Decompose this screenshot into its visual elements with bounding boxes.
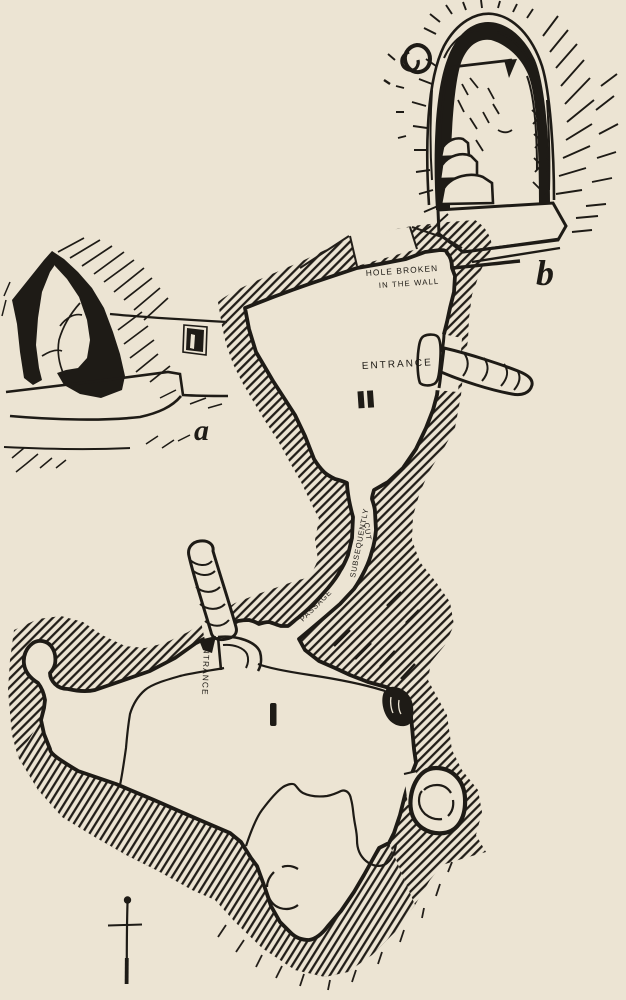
svg-text:b: b xyxy=(536,253,554,293)
svg-text:ENTRANCE: ENTRANCE xyxy=(200,641,211,696)
svg-text:a: a xyxy=(194,414,209,447)
